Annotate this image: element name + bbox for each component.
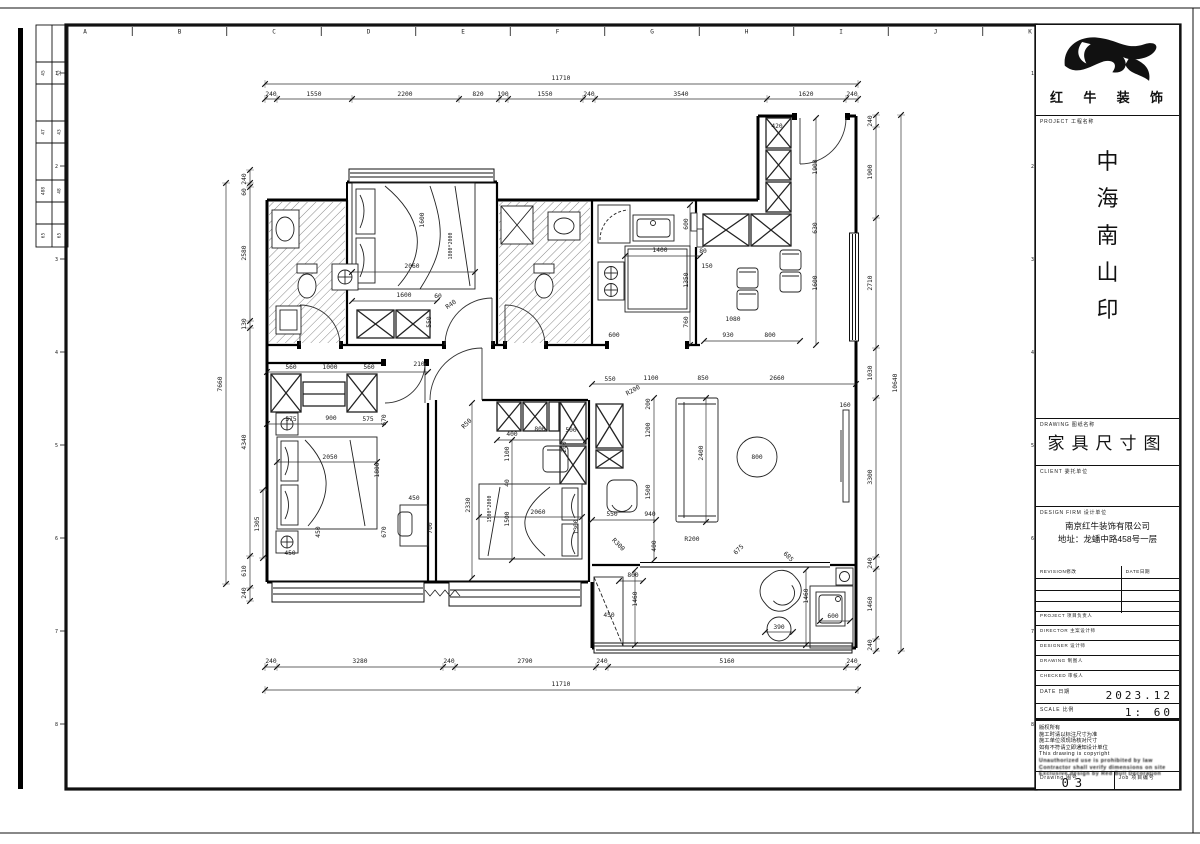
dim-label: 5160 — [719, 658, 734, 665]
dim-label: 670 — [381, 526, 388, 538]
dim-label: 80 — [699, 248, 707, 255]
dim-label: 47 — [41, 129, 47, 135]
dim-label: 240 — [846, 91, 858, 98]
dim-label: 4340 — [241, 434, 248, 449]
dim-label: 1800*2000 — [448, 232, 454, 259]
dim-label: 400 — [651, 540, 658, 552]
dim-label: 48 — [57, 188, 63, 194]
drawing-number-row: Drawing 图号 03 Job 项目编号 — [1036, 771, 1179, 790]
dim-label: 240 — [867, 639, 874, 651]
dim-label: 1550 — [306, 91, 321, 98]
dim-label: 900 — [325, 415, 337, 422]
dim-label: 7 — [55, 629, 58, 635]
dim-label: 1500 — [504, 511, 511, 526]
dim-label: 2580 — [241, 245, 248, 260]
client-label: CLIENT 委托单位 — [1036, 466, 1088, 475]
dim-label: 240 — [596, 658, 608, 665]
title-block: 红牛装饰 PROJECT 工程名称 中 海 南 山 印 DRAWING 图纸名称… — [1036, 25, 1180, 789]
dim-label: 240 — [265, 658, 277, 665]
dim-label: 2060 — [404, 263, 419, 270]
project-label: PROJECT 工程名称 — [1036, 116, 1094, 125]
dim-label: 240 — [846, 658, 858, 665]
dim-label: 210 — [413, 361, 425, 368]
revision-row — [1036, 579, 1179, 591]
dim-label: 400 — [506, 431, 518, 438]
dim-label: K — [1028, 29, 1032, 36]
dim-label: 1900 — [812, 159, 819, 174]
director-row: DIRECTOR 主案设计师 — [1036, 626, 1179, 641]
dim-label: 670 — [381, 414, 388, 426]
bedroom2-wardrobes — [497, 402, 586, 484]
dim-label: 600 — [683, 218, 690, 230]
dim-label: 2330 — [465, 497, 472, 512]
dim-label: 6 — [55, 536, 58, 542]
bed-master — [276, 413, 377, 553]
dim-label: 130 — [241, 318, 248, 330]
dim-label: 550 — [606, 511, 618, 518]
scale-label: SCALE 比例 — [1036, 704, 1074, 713]
dim-label: F — [556, 29, 560, 36]
tv — [841, 410, 849, 502]
dim-label: 1800 — [374, 462, 381, 477]
dim-label: 550 — [604, 376, 616, 383]
revision-table: REVISION修改 DATE日期 — [1036, 566, 1179, 612]
dim-label: 630 — [812, 222, 819, 234]
dim-label: 1100 — [504, 446, 511, 461]
bed-1 — [352, 183, 475, 289]
dim-label: 600 — [608, 332, 620, 339]
dim-label: 930 — [722, 332, 734, 339]
bed-2 — [479, 484, 582, 559]
dim-label: 8 — [1031, 722, 1034, 728]
dining-chairs — [737, 250, 801, 310]
dim-label: R200 — [684, 536, 699, 543]
drawing-no-value: 03 — [1036, 776, 1114, 790]
dim-label: 1500 — [645, 484, 652, 499]
dim-label: 240 — [867, 115, 874, 127]
dim-label: 5 — [55, 443, 58, 449]
dim-label: H — [745, 29, 749, 36]
project-director-row: PROJECT 项目负责人 — [1036, 611, 1179, 626]
dim-label: 160 — [839, 402, 851, 409]
date-label: DATE 日期 — [1036, 686, 1070, 695]
dim-label: 760 — [683, 316, 690, 328]
dim-label: R50 — [460, 417, 473, 430]
dim-label: 11710 — [552, 681, 571, 688]
dim-label: 1600 — [419, 212, 426, 227]
kitchen-counter — [598, 205, 690, 312]
logo-section: 红牛装饰 — [1036, 25, 1179, 115]
dim-label: 1400 — [652, 247, 667, 254]
dim-label: 7660 — [217, 376, 224, 391]
dim-label: D — [367, 29, 371, 36]
dim-label: 800 — [764, 332, 776, 339]
dim-label: 65 — [57, 233, 63, 239]
dim-label: 850 — [697, 375, 709, 382]
dim-label: B — [178, 29, 182, 36]
dim-label: 1620 — [798, 91, 813, 98]
dim-label: 1030 — [867, 365, 874, 380]
dim-label: 60 — [434, 293, 442, 300]
ceiling-symbol — [338, 270, 352, 284]
dim-label: 1350 — [683, 272, 690, 287]
drawing-label: DRAWING 图纸名称 — [1036, 419, 1095, 428]
dim-label: 1550 — [537, 91, 552, 98]
dim-label: R40 — [444, 299, 458, 311]
dim-label: 5 — [1031, 443, 1034, 449]
dim-label: 940 — [644, 511, 656, 518]
dim-label: 2790 — [517, 658, 532, 665]
dim-label: 3 — [1031, 257, 1034, 263]
sofa — [676, 398, 718, 522]
dim-label: 800 — [534, 426, 546, 433]
dim-label: 1080 — [725, 316, 740, 323]
dim-label: 575 — [362, 416, 374, 423]
job-no-label: Job 项目编号 — [1115, 772, 1179, 781]
dim-label: J — [934, 29, 938, 36]
dim-label: 52 — [57, 70, 63, 76]
dim-label: 3 — [55, 257, 58, 263]
designer-row: DESIGNER 设计师 — [1036, 641, 1179, 656]
dim-label: 800 — [751, 454, 763, 461]
dim-label: 3280 — [352, 658, 367, 665]
dim-label: C — [272, 29, 276, 36]
project-name: 中 海 南 山 印 — [1036, 143, 1179, 328]
dim-label: 1100 — [643, 375, 658, 382]
design-firm-name: 南京红牛装饰有限公司 — [1036, 520, 1179, 532]
dim-label: 240 — [443, 658, 455, 665]
dim-label: 4 — [1031, 350, 1034, 356]
dim-label: R200 — [625, 384, 642, 398]
dim-label: 390 — [773, 624, 785, 631]
dim-label: 600 — [827, 613, 839, 620]
dim-label: 550 — [426, 316, 433, 328]
dim-label: 190 — [497, 91, 509, 98]
dim-label: 1600 — [396, 292, 411, 299]
drawing-title: 家具尺寸图 — [1036, 429, 1179, 454]
dim-label: 450 — [315, 526, 322, 538]
dim-label: 560 — [363, 364, 375, 371]
dim-label: 60 — [241, 188, 248, 196]
dim-label: 2050 — [322, 454, 337, 461]
design-firm-address: 地址：龙蟠中路458号一层 — [1036, 533, 1179, 545]
revision-row — [1036, 591, 1179, 603]
dim-label: 1600 — [812, 275, 819, 290]
dim-label: 2400 — [698, 445, 705, 460]
dim-label: 1200 — [645, 422, 652, 437]
dim-label: A — [83, 29, 87, 36]
dim-label: 1000 — [322, 364, 337, 371]
dim-label: R300 — [610, 537, 626, 553]
dim-label: 1900 — [867, 164, 874, 179]
furniture — [271, 118, 853, 648]
dim-label: 4 — [55, 350, 58, 356]
dim-label: G — [650, 29, 654, 36]
dim-label: 7 — [1031, 629, 1034, 635]
dim-label: 500 — [565, 427, 577, 434]
dim-label: 8 — [55, 722, 58, 728]
dim-label: E — [461, 29, 465, 36]
dim-label: 6 — [1031, 536, 1034, 542]
redbull-logo-icon — [1048, 29, 1168, 83]
dim-label: 450 — [408, 495, 420, 502]
revision-col-label: REVISION修改 — [1036, 566, 1122, 578]
dim-label: 2 — [1031, 164, 1034, 170]
drafter-row: DRAWING 制图人 — [1036, 656, 1179, 671]
checker-row: CHECKED 审核人 — [1036, 671, 1179, 686]
dim-label: 420 — [771, 123, 783, 130]
dim-label: 450 — [284, 550, 296, 557]
dim-label: 560 — [285, 364, 297, 371]
dim-label: 610 — [241, 565, 248, 577]
staff-rows: PROJECT 项目负责人 DIRECTOR 主案设计师 DESIGNER 设计… — [1036, 611, 1179, 686]
dim-label: 820 — [472, 91, 484, 98]
design-firm-label: DESIGN FIRM 设计单位 — [1036, 507, 1107, 516]
dim-label: 2 — [55, 164, 58, 170]
dim-label: 40 — [504, 479, 511, 487]
dim-label: 200 — [645, 398, 652, 410]
grid-reference-labels: ABCDEFGHIJK11223344556677884552474348848… — [41, 29, 1035, 729]
dim-label: 43 — [57, 129, 63, 135]
dim-label: 10640 — [892, 373, 899, 392]
dim-label: 800 — [627, 572, 639, 579]
dim-label: 450 — [603, 612, 615, 619]
dim-label: 700 — [427, 522, 434, 534]
dim-label: 2660 — [769, 375, 784, 382]
washer — [810, 568, 853, 648]
scale-value: 1: 60 — [1125, 706, 1173, 719]
dim-label: I — [839, 29, 843, 36]
dim-label: 1460 — [867, 596, 874, 611]
date-value: 2023.12 — [1106, 689, 1173, 702]
living-cabinet — [596, 404, 623, 468]
dim-label: 2710 — [867, 275, 874, 290]
logo-text: 红牛装饰 — [1036, 87, 1179, 106]
date-col-label: DATE日期 — [1122, 566, 1150, 578]
master-wardrobes — [271, 374, 377, 412]
drawing-sheet: 1171024015502200820190155024035401620240… — [0, 0, 1200, 844]
dim-label: 488 — [41, 187, 47, 195]
toilet — [534, 264, 554, 298]
dim-label: 240 — [867, 557, 874, 569]
dim-label: 1305 — [254, 516, 261, 531]
dim-label: 200 — [561, 441, 568, 453]
dim-label: 240 — [583, 91, 595, 98]
dim-label: 3540 — [673, 91, 688, 98]
dim-label: 11710 — [552, 75, 571, 82]
wardrobe — [357, 310, 430, 338]
dim-label: 45 — [41, 70, 47, 76]
dim-label: 65 — [41, 233, 47, 239]
lounge-chair — [753, 563, 808, 618]
dim-label: 675 — [732, 543, 745, 556]
dim-label: 575 — [285, 416, 297, 423]
dim-label: 240 — [241, 587, 248, 599]
dim-label: 1 — [1031, 71, 1034, 77]
toilet — [297, 264, 317, 298]
floor-plan-canvas: 1171024015502200820190155024035401620240… — [0, 0, 1200, 844]
dim-label: 685 — [782, 550, 795, 563]
dim-label: 1300 — [573, 519, 580, 534]
dim-label: 240 — [265, 91, 277, 98]
dim-label: 150 — [701, 263, 713, 270]
sheet-frame — [0, 8, 1200, 833]
left-revision-table — [36, 25, 68, 247]
dim-label: 2200 — [397, 91, 412, 98]
entry-cabinets — [703, 118, 791, 246]
dim-label: 1500*2000 — [487, 495, 493, 522]
dim-label: 1460 — [632, 591, 639, 606]
dim-label: 2060 — [530, 509, 545, 516]
dim-label: 240 — [241, 173, 248, 185]
dim-label: 3300 — [867, 469, 874, 484]
dim-label: 1460 — [803, 588, 810, 603]
